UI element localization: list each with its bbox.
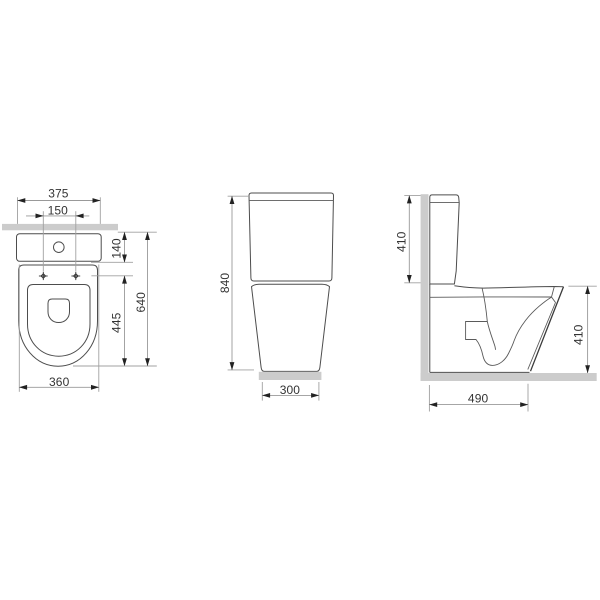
svg-text:445: 445 bbox=[109, 312, 123, 333]
svg-text:375: 375 bbox=[48, 186, 69, 200]
svg-text:410: 410 bbox=[395, 231, 409, 252]
svg-text:840: 840 bbox=[218, 273, 232, 294]
svg-text:410: 410 bbox=[571, 324, 585, 345]
svg-text:150: 150 bbox=[48, 203, 69, 217]
svg-text:360: 360 bbox=[49, 375, 70, 389]
svg-text:140: 140 bbox=[110, 238, 124, 259]
svg-text:490: 490 bbox=[468, 392, 489, 406]
svg-text:640: 640 bbox=[134, 292, 148, 313]
svg-text:300: 300 bbox=[280, 383, 301, 397]
